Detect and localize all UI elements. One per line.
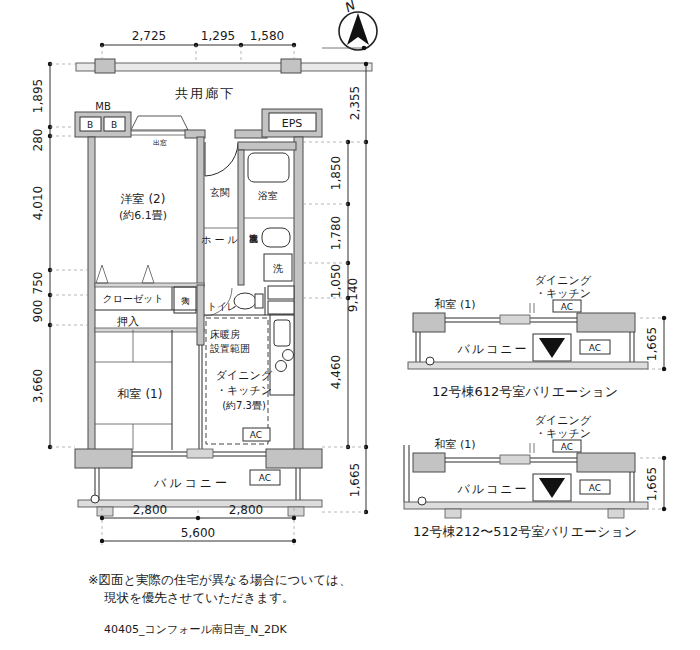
stove-burner	[276, 361, 287, 372]
dim-top-3: 1,580	[250, 29, 284, 43]
storage-label: 物入	[182, 296, 191, 305]
dimension-top: 2,725 1,295 1,580	[100, 29, 296, 60]
dim-right-inner-4: 4,460	[329, 355, 343, 389]
dimension-bottom: 2,800 2,800 5,600	[100, 503, 296, 545]
hall-label: ホール	[201, 234, 240, 245]
meter-box-b-right: B	[111, 120, 117, 130]
eps-label: EPS	[282, 117, 303, 130]
wash-basin	[262, 228, 290, 247]
bath-label: 浴室	[258, 190, 278, 201]
washer-label: 洗	[273, 263, 283, 274]
dim-top-1: 2,725	[132, 29, 166, 43]
v1-balcony-drain	[426, 357, 434, 365]
western-room-size: (約6.1畳)	[119, 209, 167, 222]
dim-right-inner-3: 1,050	[329, 264, 343, 298]
v1-caption: 12号棟612号室バリエーション	[432, 384, 618, 399]
pillar-bottom-right	[266, 449, 322, 468]
dim-left-3: 4,010	[31, 186, 45, 220]
v1-dk-label-1: ダイニング	[535, 274, 592, 287]
file-label: 40405_コンフォール南日吉_N_2DK	[104, 623, 287, 636]
ac-balcony-label: AC	[259, 473, 271, 483]
entrance-door-arc	[205, 142, 238, 176]
dim-bottom-total: 5,600	[181, 526, 215, 540]
dim-bottom-1: 2,800	[133, 503, 167, 517]
north-compass: N	[322, 0, 377, 50]
dk-label-2: ・キッチン	[216, 384, 272, 397]
dim-bottom-2: 2,800	[229, 503, 263, 517]
bay-window-label: 出窓	[153, 139, 167, 147]
closet-label: クローゼット	[102, 293, 163, 304]
ac-dk-label: AC	[250, 430, 262, 440]
v1-dim-right: 1,665	[645, 327, 659, 361]
note-line-1: ※図面と実際の住宅が異なる場合については、	[88, 572, 351, 587]
floor-heating-label-1: 床暖房	[210, 329, 240, 340]
dim-right-inner-2: 1,780	[329, 216, 343, 250]
dim-left-5: 900	[31, 300, 45, 323]
stove-burner	[283, 350, 294, 361]
toilet-label: トイレ	[207, 301, 238, 312]
dim-right-outer-1: 2,355	[348, 86, 362, 120]
v2-japanese-room-label: 和室 (1)	[434, 438, 475, 451]
dim-left-6: 3,660	[31, 369, 45, 403]
dim-left-2: 280	[31, 129, 45, 152]
meter-box-b-left: B	[87, 120, 93, 130]
balcony-drain	[91, 495, 99, 503]
dim-top-2: 1,295	[201, 29, 235, 43]
dim-right-inner-1: 1,850	[329, 156, 343, 190]
dim-left-1: 1,895	[31, 79, 45, 113]
dim-right-outer-3: 1,665	[348, 463, 362, 497]
balcony-label: バルコニー	[153, 476, 230, 490]
v1-japanese-room-label: 和室 (1)	[434, 298, 475, 311]
mb-label: MB	[95, 101, 111, 112]
corridor-label: 共用廊下	[175, 86, 235, 101]
balcony-rail	[78, 500, 322, 507]
common-corridor: 共用廊下	[76, 59, 372, 101]
japanese-room-label: 和室 (1)	[118, 387, 163, 401]
dk-label-1: ダイニング	[216, 369, 273, 382]
v1-balcony-rail	[408, 362, 648, 369]
v2-ac-side-label: AC	[589, 483, 601, 493]
note-line-2: 現状を優先させていただきます。	[104, 590, 294, 605]
bathtub	[248, 153, 289, 182]
v2-ac-top-label: AC	[561, 442, 573, 452]
v1-ac-side-label: AC	[589, 343, 601, 353]
floor-plan-drawing: N 共用廊下 MB B B 出窓 EPS	[0, 0, 700, 650]
dim-left-4: 750	[31, 272, 45, 295]
washroom-label: 洗面脱衣室	[248, 234, 258, 244]
v2-caption: 12号棟212〜512号室バリエーション	[413, 524, 637, 539]
v1-balcony-label: バルコニー	[456, 342, 528, 356]
v2-balcony-label: バルコニー	[456, 482, 528, 496]
v2-balcony-drain	[418, 497, 426, 505]
v1-ac-top-label: AC	[561, 302, 573, 312]
kitchen-sink	[274, 320, 290, 346]
pillar-bottom-left	[75, 449, 132, 468]
bay-window	[131, 116, 188, 130]
entrance-label: 玄関	[210, 187, 230, 198]
variation-lower: ダイニング ・キッチン 和室 (1) AC バルコニー AC 1,665 12号…	[404, 414, 670, 539]
western-room-label: 洋室 (2)	[121, 192, 166, 206]
floor-plan-page: N 共用廊下 MB B B 出窓 EPS	[0, 0, 700, 650]
v2-dk-label-1: ダイニング	[535, 414, 592, 427]
v2-dk-label-2: ・キッチン	[535, 427, 591, 440]
footer-notes: ※図面と実際の住宅が異なる場合については、 現状を優先させていただきます。 40…	[88, 572, 351, 636]
v1-dk-label-2: ・キッチン	[535, 287, 591, 300]
dk-label-3: (約7.3畳)	[222, 400, 266, 411]
oshiire-label: 押入	[117, 315, 139, 328]
main-room-labels: 洋室 (2) (約6.1畳) 玄関 ホール 浴室 洗面脱衣室 洗 クローゼット …	[102, 187, 283, 490]
v2-balcony-rail	[404, 502, 648, 509]
variation-upper: ダイニング ・キッチン 和室 (1) AC バルコニー AC 1,665 12号…	[408, 274, 670, 399]
dim-right-outer-2: 9,140	[346, 278, 360, 312]
v2-dim-right: 1,665	[645, 467, 659, 501]
floor-heating-label-2: 設置範囲	[210, 343, 250, 354]
